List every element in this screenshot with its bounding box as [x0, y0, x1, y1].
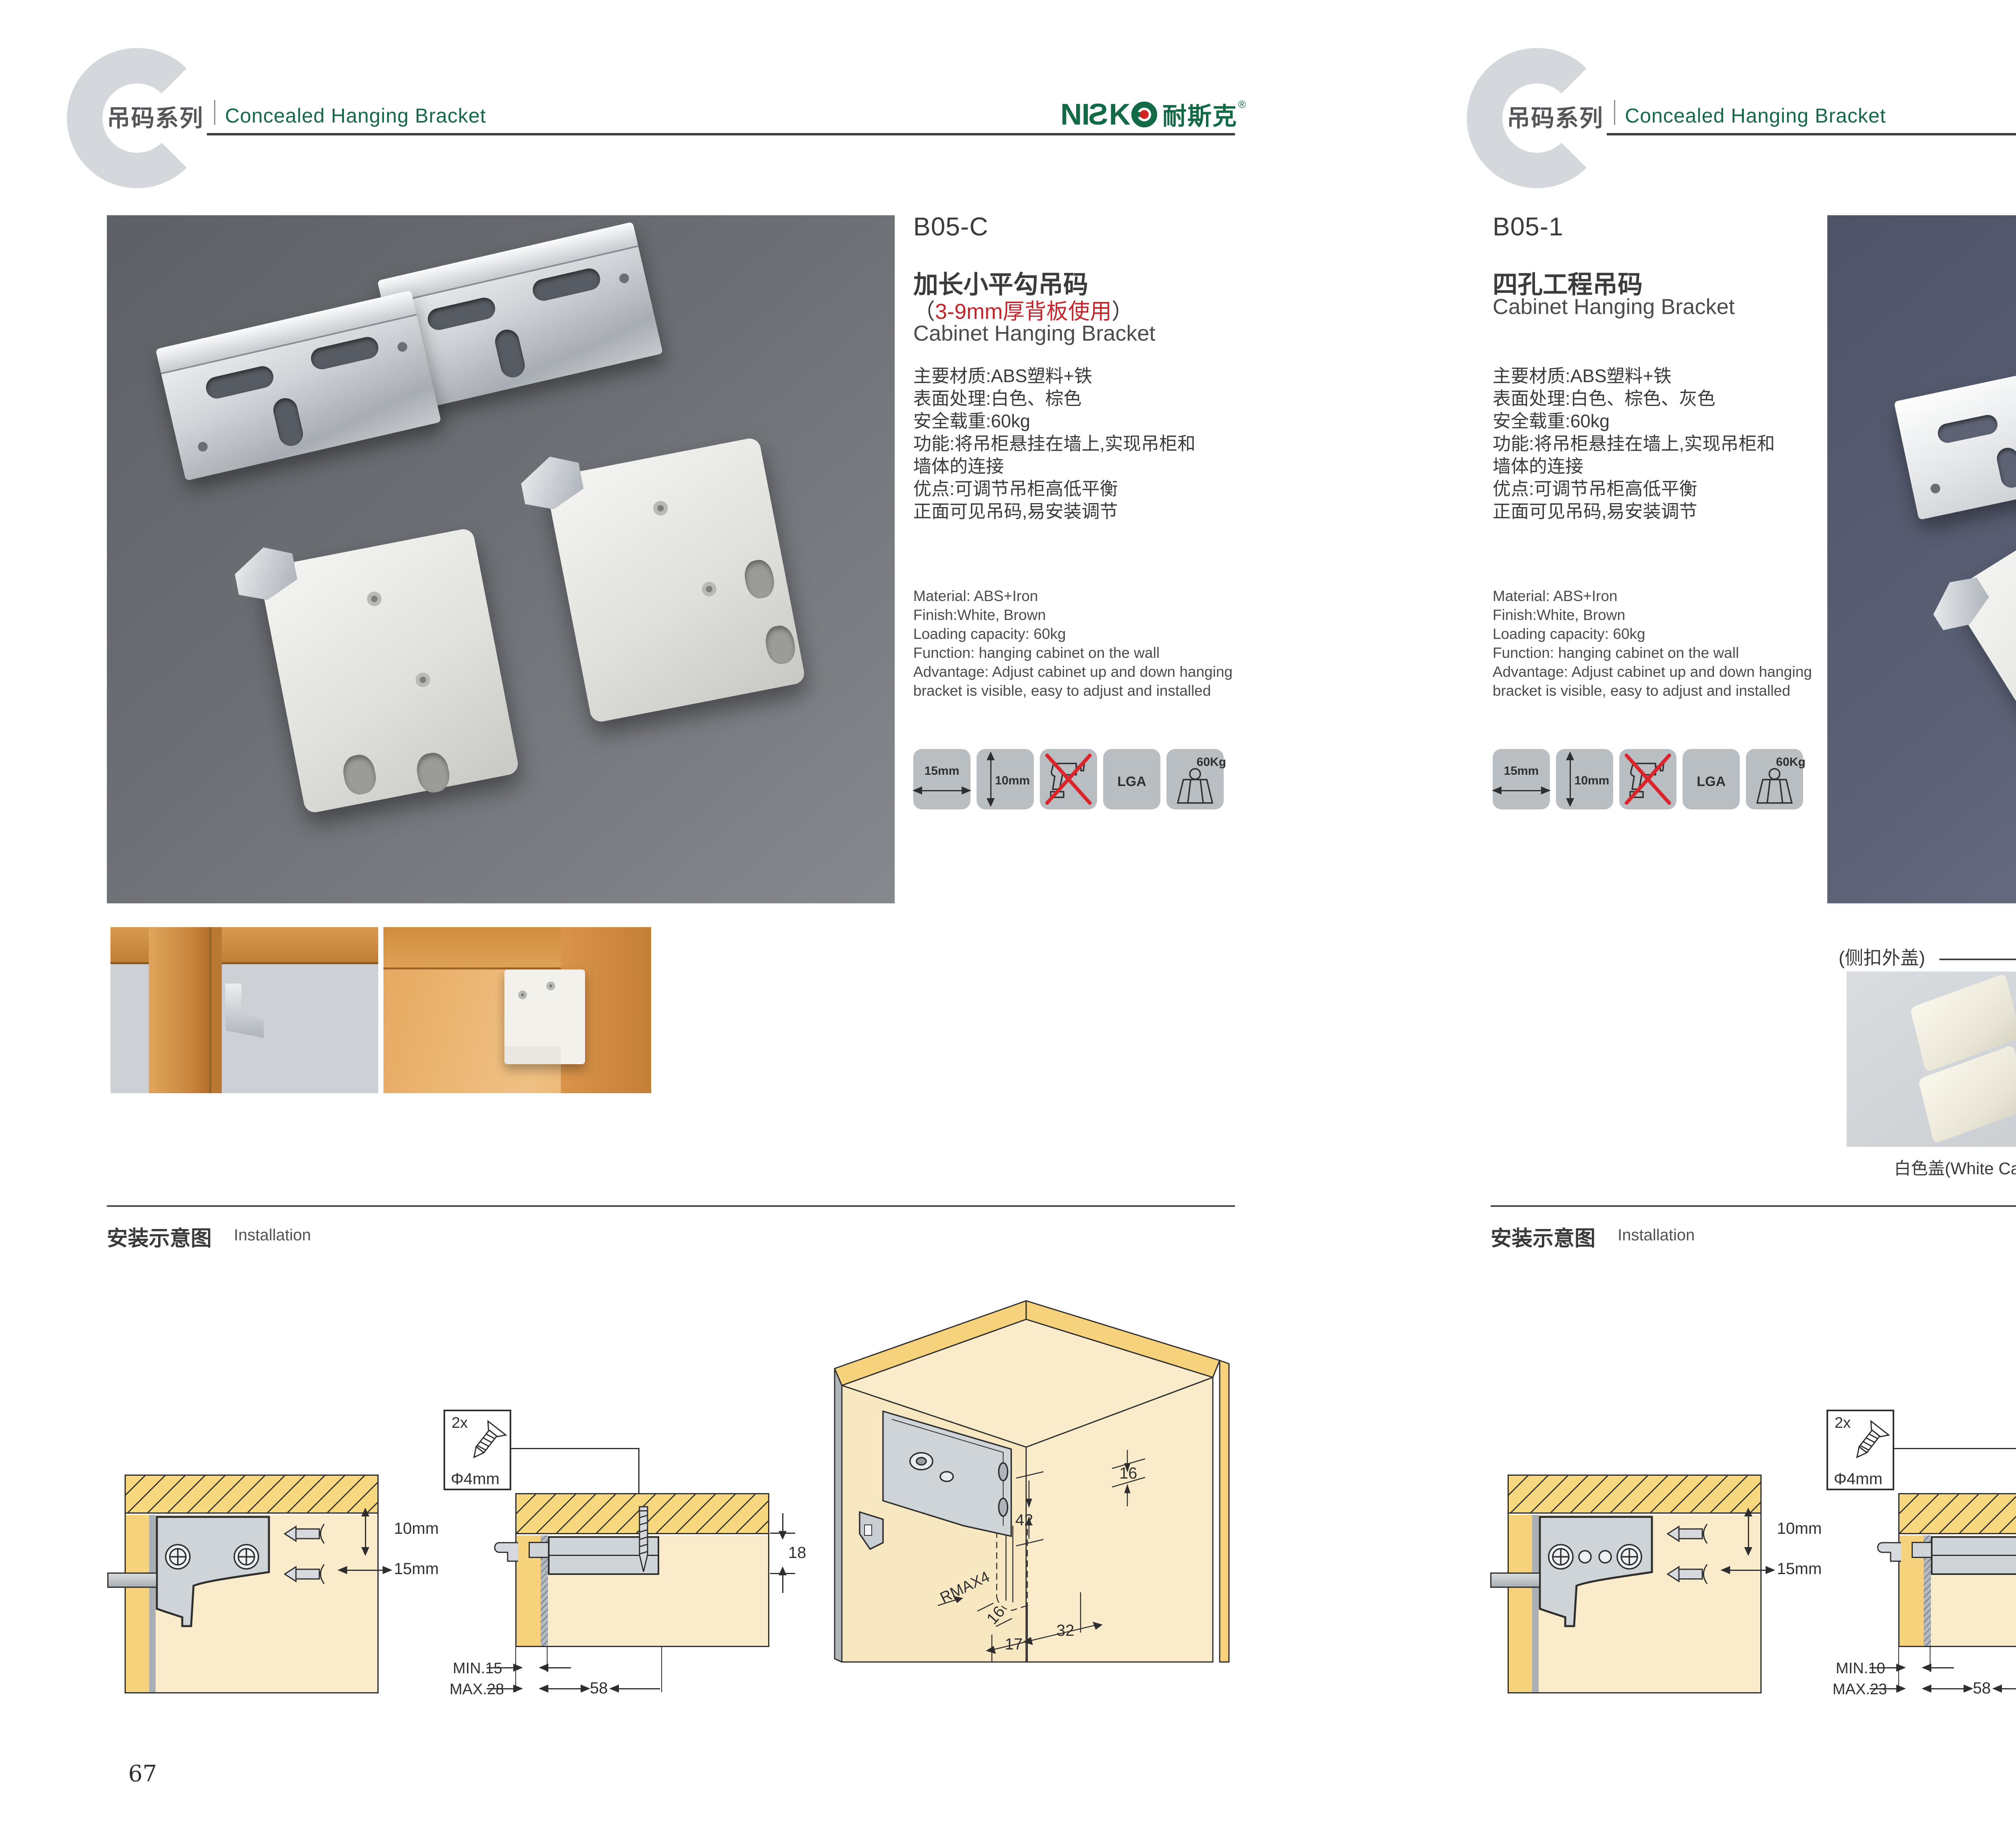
product-title-en: Cabinet Hanging Bracket: [913, 321, 1155, 346]
horizontal-adjust-arrow: [1730, 1570, 1766, 1571]
icon-load-60kg: 60Kg: [1166, 749, 1224, 809]
white-four-hole-bracket: [1948, 482, 2016, 811]
dim-label: 18: [788, 1544, 806, 1562]
icon-lga: LGA: [1103, 749, 1160, 809]
spec-line: Loading capacity: 60kg: [1493, 624, 1812, 643]
wall-hook-section-icon: [1874, 1539, 1902, 1564]
spec-line: 安全载重:60kg: [1493, 410, 1775, 433]
icon-lga: LGA: [1683, 749, 1740, 809]
icon-no-drill: [1040, 749, 1097, 809]
product-photo-b051: [1827, 215, 2016, 903]
cap-label: 白色盖(White Cap): [1847, 1155, 2016, 1179]
metal-hook-icon: [225, 984, 264, 1038]
dim-label: 42: [1015, 1511, 1033, 1529]
vertical-adjust-arrow: [365, 1516, 366, 1547]
spec-line: 安全载重:60kg: [913, 410, 1195, 433]
dim-arrow: [487, 1667, 513, 1668]
spec-line: Material: ABS+Iron: [913, 587, 1233, 605]
spec-line: bracket is visible, easy to adjust and i…: [913, 681, 1233, 700]
install-diagram-section: 2x Φ4mm: [1824, 1408, 2016, 1714]
white-wall-plate: [1894, 354, 2016, 520]
dim-label: 32: [1056, 1622, 1075, 1640]
screwdriver-bit-icon: [284, 1564, 332, 1585]
installed-white-bracket: [504, 969, 585, 1064]
dim-arrow: [619, 1688, 660, 1689]
spec-line: Function: hanging cabinet on the wall: [1493, 643, 1812, 662]
header-rule: [207, 133, 1235, 135]
product-title-en: Cabinet Hanging Bracket: [1493, 294, 1735, 319]
product-photo-b05c: [107, 215, 895, 903]
logo-red-dot-icon: [1140, 110, 1149, 119]
install-title-en: Installation: [234, 1226, 311, 1244]
bracket-section: [1931, 1536, 2016, 1575]
screwdriver-bit-icon: [1667, 1564, 1715, 1585]
install-rule: [107, 1205, 1235, 1207]
screwdriver-bit-icon: [284, 1523, 332, 1544]
dim-arrow: [1870, 1667, 1896, 1668]
screw-icon: [461, 1419, 510, 1467]
page-number: 67: [128, 1761, 157, 1787]
icon-width-15mm: 15mm: [1493, 749, 1550, 809]
cabinet-3d-drawing: [823, 1292, 1238, 1667]
dim-arrow: [2002, 1688, 2016, 1689]
vertical-adjust-arrow: [1748, 1516, 1749, 1547]
weight-icon: [1166, 765, 1224, 809]
bracket-hook-icon: [231, 542, 300, 605]
caps-section-rule: [1939, 959, 2016, 960]
spec-line: 功能:将吊柜悬挂在墙上,实现吊柜和: [1493, 433, 1775, 455]
install-diagram-section: 2x Φ4mm: [442, 1408, 804, 1714]
dim-arrow: [1931, 1688, 1964, 1689]
icon-label: 15mm: [913, 764, 971, 778]
no-drill-icon: [1040, 749, 1097, 809]
series-title-en: Concealed Hanging Bracket: [225, 104, 486, 127]
dim-arrow: [1931, 1667, 1954, 1668]
dim-label: 16: [1119, 1464, 1137, 1483]
bracket-section-drawing: [1539, 1516, 1654, 1629]
bracket-hook-icon: [1923, 569, 1996, 638]
spec-line: Finish:White, Brown: [913, 605, 1233, 624]
dim-arrow: [782, 1513, 783, 1531]
screw-in-section-icon: [634, 1506, 653, 1577]
spec-line: 优点:可调节吊柜高低平衡: [1493, 478, 1775, 500]
white-hanging-bracket: [545, 437, 806, 724]
install-diagram-section: 10mm 15mm: [1508, 1475, 1808, 1694]
install-title-en: Installation: [1618, 1226, 1695, 1244]
logo-cn-text: 耐斯克: [1162, 97, 1237, 132]
header-rule: [1607, 133, 2016, 135]
spec-line: 主要材质:ABS塑料+铁: [913, 365, 1195, 387]
install-rule: [1491, 1205, 2016, 1207]
icon-height-10mm: 10mm: [977, 749, 1034, 809]
spec-line: 主要材质:ABS塑料+铁: [1493, 365, 1775, 387]
weight-icon: [1746, 765, 1803, 809]
wall-hook-section: [107, 1572, 157, 1588]
caps-section-label: (侧扣外盖): [1839, 943, 1925, 970]
specs-cn: 主要材质:ABS塑料+铁 表面处理:白色、棕色、灰色 安全载重:60kg 功能:…: [1493, 365, 1775, 523]
dim-label: 58: [590, 1679, 608, 1697]
icon-height-10mm: 10mm: [1556, 749, 1613, 809]
nisko-logo: N I S K 耐斯克 ®: [1060, 97, 1246, 132]
icon-label: 15mm: [1493, 764, 1550, 778]
application-photo-hook: [110, 927, 378, 1093]
specs-en: Material: ABS+Iron Finish:White, Brown L…: [1493, 587, 1812, 700]
logo-letter: K: [1109, 97, 1129, 131]
subtitle-red-text: 3-9mm厚背板使用: [935, 300, 1112, 324]
horizontal-arrow-icon: [1502, 790, 1541, 791]
specs-en: Material: ABS+Iron Finish:White, Brown L…: [913, 587, 1233, 700]
icon-label: LGA: [1683, 774, 1740, 790]
install-title-cn: 安装示意图: [107, 1221, 212, 1252]
icon-no-drill: [1619, 749, 1677, 809]
logo-letter: N: [1060, 97, 1081, 131]
horizontal-adjust-arrow: [347, 1570, 383, 1571]
spec-line: 正面可见吊码,易安装调节: [1493, 500, 1775, 523]
white-hanging-bracket: [258, 527, 520, 814]
install-diagram-section: 10mm 15mm: [125, 1475, 425, 1694]
spec-line: Finish:White, Brown: [1493, 605, 1812, 624]
spec-line: Material: ABS+Iron: [1493, 587, 1812, 605]
cap-image-white: [1847, 971, 2016, 1147]
dim-arrow: [487, 1688, 513, 1689]
icon-load-60kg: 60Kg: [1746, 749, 1803, 809]
icon-label: 10mm: [984, 774, 1041, 788]
logo-letter: I: [1081, 97, 1089, 131]
dim-arrow: [782, 1575, 783, 1593]
registered-mark: ®: [1238, 98, 1246, 111]
dim-label: 10mm: [1777, 1520, 1822, 1538]
install-diagram-section: 16 42 RMAX4 16 17 32: [823, 1292, 1238, 1667]
header-divider: [1614, 100, 1615, 125]
paren: （: [913, 300, 935, 324]
dim-arrow: [1870, 1688, 1896, 1689]
logo-o-icon: [1131, 102, 1157, 127]
screwdriver-bit-icon: [1667, 1523, 1715, 1544]
install-title-cn: 安装示意图: [1491, 1221, 1595, 1252]
spec-line: Loading capacity: 60kg: [913, 624, 1233, 643]
spec-line: 优点:可调节吊柜高低平衡: [913, 478, 1195, 500]
dim-label: MAX.28: [450, 1681, 504, 1698]
specs-cn: 主要材质:ABS塑料+铁 表面处理:白色、棕色 安全载重:60kg 功能:将吊柜…: [913, 365, 1195, 523]
dim-label: MIN.10: [1836, 1660, 1885, 1677]
bracket-section-drawing: [156, 1516, 271, 1629]
spec-line: Advantage: Adjust cabinet up and down ha…: [913, 662, 1233, 681]
spec-line: 墙体的连接: [1493, 455, 1775, 478]
spec-line: 表面处理:白色、棕色、灰色: [1493, 387, 1775, 410]
dim-arrow: [548, 1688, 581, 1689]
header-divider: [214, 100, 215, 125]
series-title-cn: 吊码系列: [1507, 99, 1604, 133]
spec-line: 功能:将吊柜悬挂在墙上,实现吊柜和: [913, 433, 1195, 455]
spec-line: bracket is visible, easy to adjust and i…: [1493, 681, 1812, 700]
metal-wall-plate: [156, 290, 442, 481]
dim-label: 10mm: [394, 1520, 439, 1538]
no-drill-icon: [1619, 749, 1677, 809]
screw-icon: [1844, 1419, 1893, 1467]
bracket-hook-icon: [517, 451, 586, 514]
product-code: B05-C: [913, 212, 988, 241]
icon-width-15mm: 15mm: [913, 749, 971, 809]
horizontal-arrow-icon: [922, 790, 962, 791]
dim-label: 15mm: [1777, 1560, 1822, 1578]
wall-hook-section-icon: [491, 1539, 519, 1564]
screw-diameter: Φ4mm: [1834, 1470, 1883, 1488]
dim-arrow: [548, 1667, 571, 1668]
series-title-cn: 吊码系列: [107, 99, 204, 133]
dim-label: MAX.23: [1833, 1681, 1887, 1698]
spec-line: 墙体的连接: [913, 455, 1195, 478]
series-title-en: Concealed Hanging Bracket: [1625, 104, 1886, 127]
icon-label: LGA: [1103, 774, 1160, 790]
spec-line: 表面处理:白色、棕色: [913, 387, 1195, 410]
spec-line: 正面可见吊码,易安装调节: [913, 500, 1195, 523]
wall-hook-section: [1490, 1572, 1540, 1588]
screw-diameter: Φ4mm: [451, 1470, 500, 1488]
paren: ）: [1112, 300, 1133, 324]
logo-letter-reversed-s: S: [1089, 97, 1108, 131]
dim-label: 58: [1973, 1679, 1991, 1697]
product-code: B05-1: [1493, 212, 1564, 241]
dim-label: 15mm: [394, 1560, 439, 1578]
application-photo-bracket: [383, 927, 651, 1093]
dim-label: MIN.15: [453, 1660, 502, 1677]
spec-line: Function: hanging cabinet on the wall: [913, 643, 1233, 662]
icon-label: 10mm: [1563, 774, 1620, 788]
dim-label: 17: [1005, 1635, 1023, 1654]
spec-line: Advantage: Adjust cabinet up and down ha…: [1493, 662, 1812, 681]
